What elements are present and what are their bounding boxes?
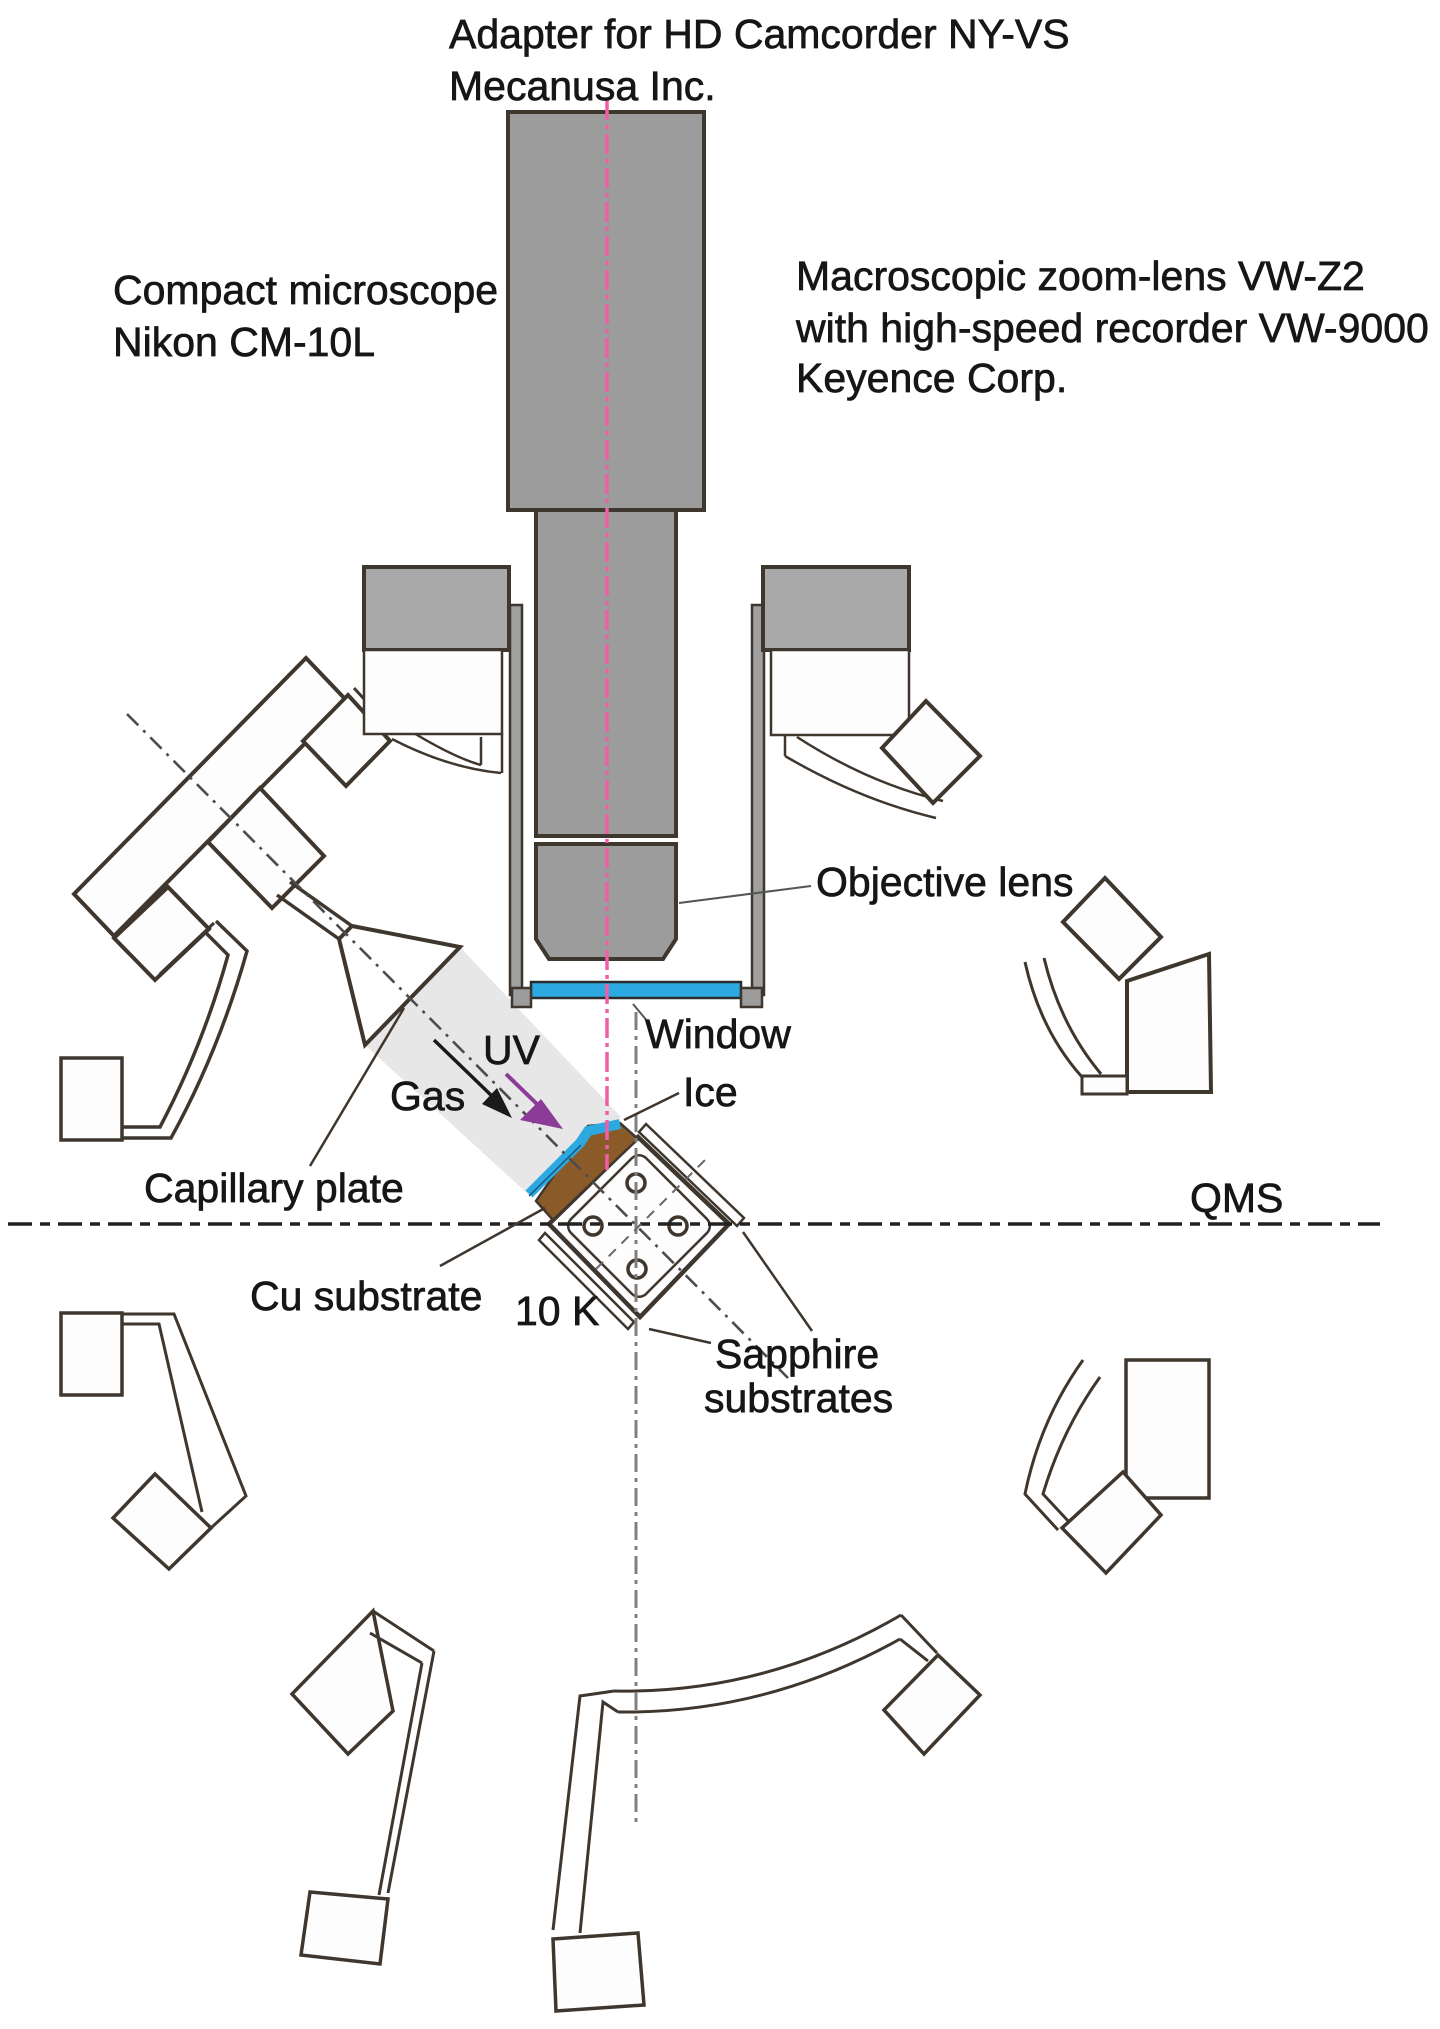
svg-text:Compact microscope: Compact microscope <box>113 267 498 313</box>
svg-text:QMS: QMS <box>1190 1175 1283 1221</box>
svg-text:Capillary plate: Capillary plate <box>144 1165 404 1211</box>
svg-text:Window: Window <box>645 1011 791 1057</box>
svg-text:Mecanusa Inc.: Mecanusa Inc. <box>449 63 716 109</box>
svg-text:Gas: Gas <box>390 1073 465 1119</box>
svg-text:substrates: substrates <box>704 1375 893 1421</box>
svg-text:Adapter for HD Camcorder NY-VS: Adapter for HD Camcorder NY-VS <box>449 11 1070 57</box>
svg-text:Ice: Ice <box>683 1069 738 1115</box>
svg-text:Macroscopic zoom-lens VW-Z2: Macroscopic zoom-lens VW-Z2 <box>796 253 1365 299</box>
svg-text:Keyence Corp.: Keyence Corp. <box>796 355 1067 401</box>
svg-text:Objective lens: Objective lens <box>816 859 1074 905</box>
svg-text:UV: UV <box>483 1027 541 1073</box>
svg-text:Cu substrate: Cu substrate <box>250 1273 482 1319</box>
svg-text:Nikon CM-10L: Nikon CM-10L <box>113 319 375 365</box>
svg-text:Sapphire: Sapphire <box>715 1331 879 1377</box>
svg-text:10 K: 10 K <box>515 1288 599 1334</box>
svg-text:with high-speed recorder VW-90: with high-speed recorder VW-9000 <box>795 305 1429 351</box>
